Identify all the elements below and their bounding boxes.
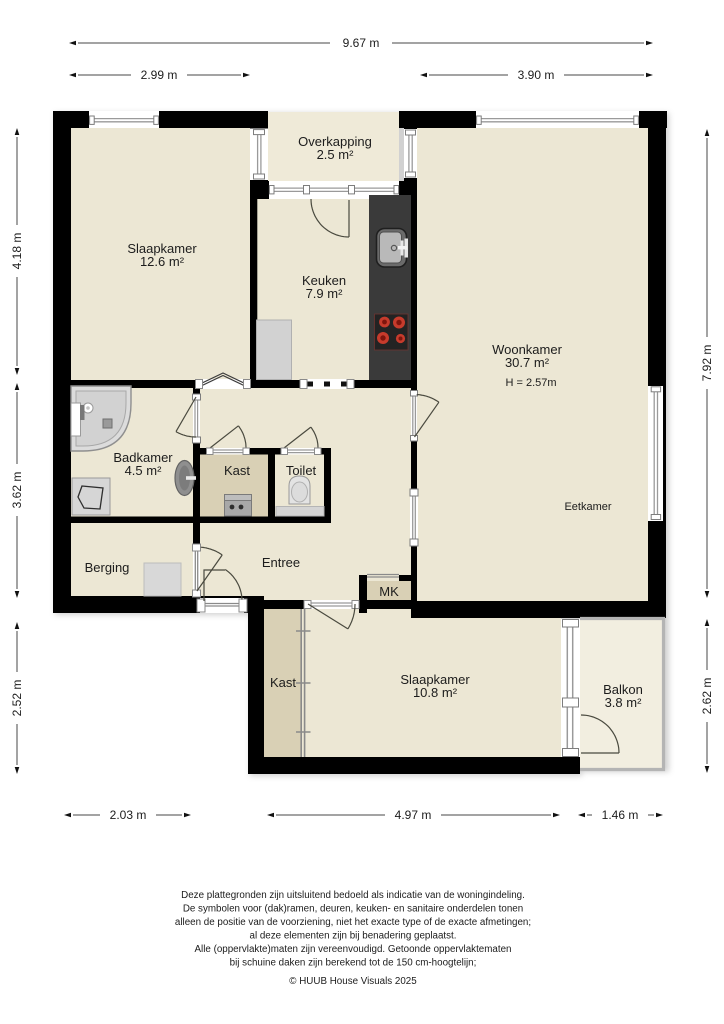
svg-text:Eetkamer: Eetkamer bbox=[564, 501, 611, 513]
svg-text:2.5 m²: 2.5 m² bbox=[317, 147, 355, 162]
svg-text:7.92 m: 7.92 m bbox=[700, 345, 714, 382]
svg-text:Deze plattegronden zijn uitslu: Deze plattegronden zijn uitsluitend bedo… bbox=[181, 890, 525, 901]
svg-text:Entree: Entree bbox=[262, 555, 300, 570]
svg-text:alleen de positie van de voorz: alleen de positie van de voorziening, ni… bbox=[175, 917, 531, 928]
svg-text:al deze elementen zijn bij ben: al deze elementen zijn bij benadering ge… bbox=[250, 931, 457, 942]
svg-text:1.46 m: 1.46 m bbox=[602, 808, 639, 822]
svg-text:H = 2.57m: H = 2.57m bbox=[505, 377, 556, 389]
svg-text:© HUUB House Visuals 2025: © HUUB House Visuals 2025 bbox=[289, 976, 417, 987]
svg-text:Kast: Kast bbox=[224, 463, 250, 478]
svg-text:Alle (oppervlakte)maten zijn v: Alle (oppervlakte)maten zijn vereenvoudi… bbox=[195, 944, 512, 955]
svg-text:7.9 m²: 7.9 m² bbox=[306, 286, 344, 301]
svg-text:2.52 m: 2.52 m bbox=[10, 680, 24, 717]
svg-text:Toilet: Toilet bbox=[286, 463, 317, 478]
svg-text:Kast: Kast bbox=[270, 675, 296, 690]
svg-text:2.03 m: 2.03 m bbox=[110, 808, 147, 822]
svg-text:30.7 m²: 30.7 m² bbox=[505, 355, 550, 370]
svg-text:4.97 m: 4.97 m bbox=[395, 808, 432, 822]
svg-text:3.62 m: 3.62 m bbox=[10, 472, 24, 509]
svg-text:9.67 m: 9.67 m bbox=[343, 36, 380, 50]
svg-text:10.8 m²: 10.8 m² bbox=[413, 685, 458, 700]
svg-text:bij schuine daken zijn bereken: bij schuine daken zijn berekend tot de 1… bbox=[230, 958, 477, 969]
svg-text:Berging: Berging bbox=[85, 560, 130, 575]
svg-text:MK: MK bbox=[379, 584, 399, 599]
svg-text:De symbolen voor (dak)ramen, d: De symbolen voor (dak)ramen, deuren, keu… bbox=[183, 904, 523, 915]
svg-text:3.90 m: 3.90 m bbox=[518, 68, 555, 82]
svg-text:4.18 m: 4.18 m bbox=[10, 233, 24, 270]
svg-text:2.99 m: 2.99 m bbox=[141, 68, 178, 82]
svg-text:4.5 m²: 4.5 m² bbox=[125, 463, 163, 478]
svg-text:12.6 m²: 12.6 m² bbox=[140, 254, 185, 269]
svg-text:3.8 m²: 3.8 m² bbox=[605, 695, 643, 710]
svg-text:2.62 m: 2.62 m bbox=[700, 678, 714, 715]
